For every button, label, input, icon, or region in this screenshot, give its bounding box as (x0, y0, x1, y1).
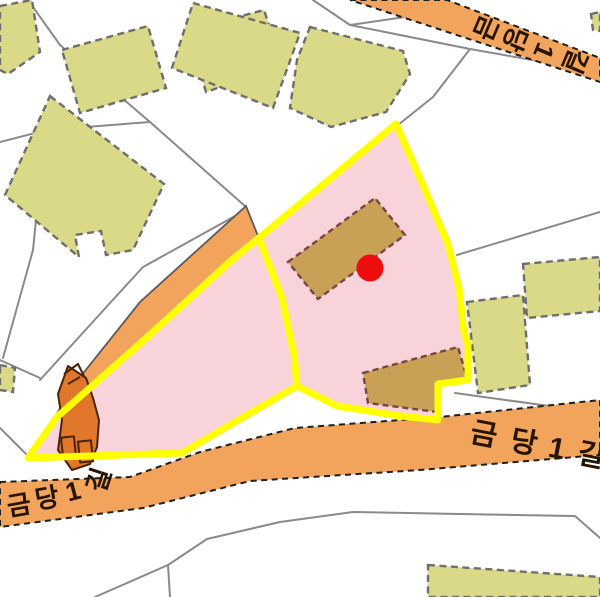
parcel-line (168, 565, 170, 597)
building (523, 257, 600, 318)
building (0, 365, 15, 392)
building (172, 3, 300, 108)
parcel-line (350, 17, 405, 25)
building (5, 96, 164, 257)
building (467, 295, 530, 393)
building (290, 27, 410, 127)
parcel-line (398, 49, 470, 125)
parcel-line (457, 212, 600, 255)
map-canvas[interactable]: 금 당 1 길 금 당 1 길 금 당 1 길 (0, 0, 600, 597)
building (591, 12, 600, 31)
parcel-line (0, 428, 30, 458)
selected-parcel-marker[interactable] (357, 255, 384, 282)
building (62, 26, 166, 113)
building (428, 565, 600, 597)
building (0, 0, 40, 74)
